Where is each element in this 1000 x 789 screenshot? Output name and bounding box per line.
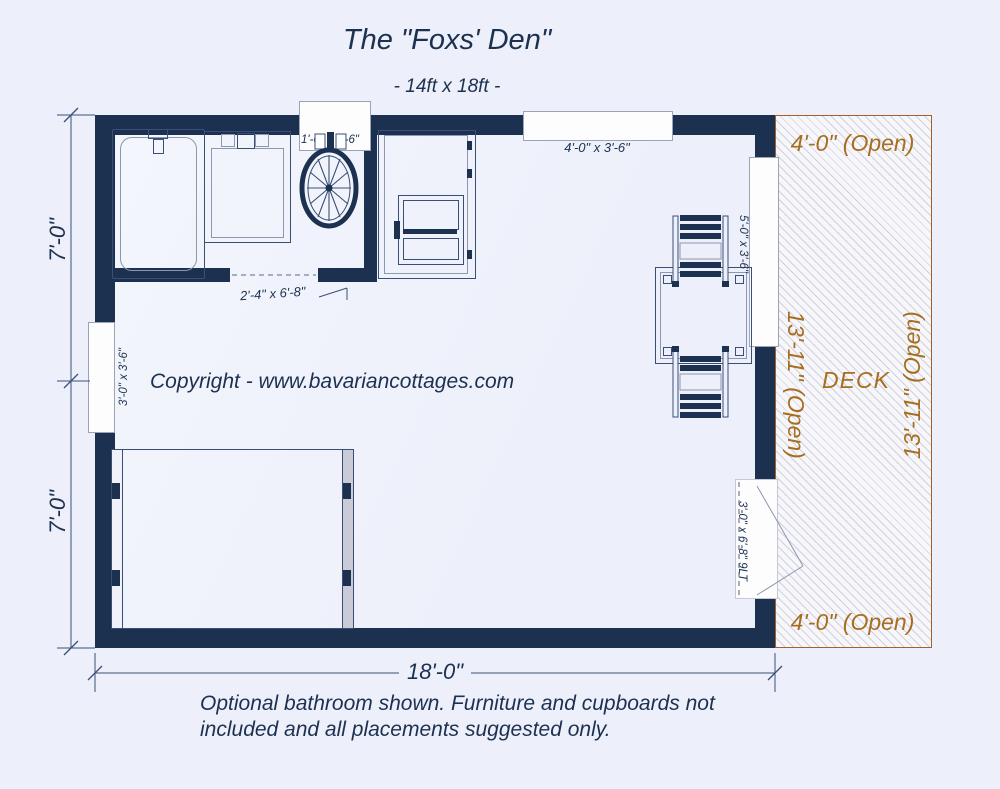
vanity-basin [211, 148, 284, 238]
table-corner-bl [663, 347, 672, 356]
bed-post-mark-3 [343, 483, 351, 499]
left-window [88, 322, 115, 433]
stove-door [403, 238, 459, 260]
bed-footboard [342, 449, 354, 629]
page-subtitle: - 14ft x 18ft - [0, 76, 894, 98]
bed-post-mark-4 [343, 570, 351, 586]
table-corner-br [735, 347, 744, 356]
cabinet-hinge-top [467, 141, 472, 150]
dim-left-upper: 7'-0" [45, 180, 71, 300]
copyright-text: Copyright - www.bavariancottages.com [150, 370, 514, 394]
bed-headboard [111, 449, 123, 629]
bath-window-label: 1'-6" x 2'-6" [301, 134, 359, 146]
deck-door-label: 3'-0" x 6'-8" 9LT [732, 461, 752, 621]
stove-top [403, 200, 459, 230]
stove-handle [403, 229, 457, 234]
front-window-label: 4'-0" x 3'-6" [523, 140, 671, 155]
page-title: The "Foxs' Den" [0, 24, 894, 57]
note-line-2: included and all placements suggested on… [200, 717, 611, 743]
bed [111, 449, 354, 629]
note-line-1: Optional bathroom shown. Furniture and c… [200, 691, 715, 717]
deck-dim-top: 4'-0" (Open) [777, 129, 928, 157]
floor-plan-page: { "title": "The \"Foxs' Den\"", "subtitl… [0, 0, 1000, 789]
right-window-label: 5'-0" x 3'-6" [733, 174, 753, 314]
bathtub-faucet [148, 129, 168, 139]
bathroom-wall-vertical [364, 135, 377, 282]
vanity-faucet [237, 133, 255, 149]
bathroom-wall-horizontal-right [318, 268, 377, 282]
table-corner-tl [663, 275, 672, 284]
dim-bottom-value: 18'-0" [399, 659, 471, 684]
cabinet-hinge-mid [467, 169, 472, 178]
right-window [749, 157, 779, 347]
cabinet-hinge-bottom [467, 250, 472, 259]
left-window-label: 3'-0" x 3'-6" [114, 307, 134, 447]
deck-dim-bottom: 4'-0" (Open) [777, 608, 928, 636]
bed-post-mark-1 [112, 483, 120, 499]
bed-post-mark-2 [112, 570, 120, 586]
dim-left-lower: 7'-0" [45, 452, 71, 572]
vanity-handle-right [255, 134, 269, 147]
bathtub-spout [153, 139, 164, 154]
bathtub-basin [120, 137, 197, 271]
vanity-handle-left [221, 134, 235, 147]
stove-knob [394, 221, 400, 239]
front-window [523, 111, 673, 141]
dim-bottom: 18'-0" [95, 659, 775, 685]
deck-label: DECK [777, 366, 935, 394]
